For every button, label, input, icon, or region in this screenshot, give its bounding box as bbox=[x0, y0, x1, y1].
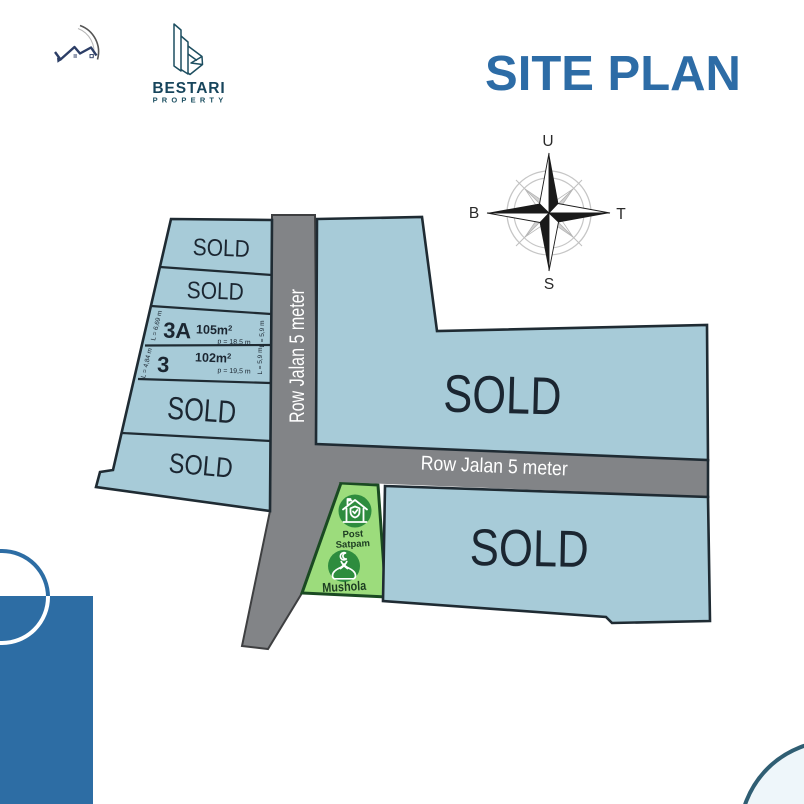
svg-text:L = 5,9 m: L = 5,9 m bbox=[257, 347, 264, 374]
svg-text:p = 19,5 m: p = 19,5 m bbox=[217, 367, 251, 375]
svg-text:3A: 3A bbox=[163, 318, 192, 344]
svg-text:SOLD: SOLD bbox=[192, 234, 250, 263]
svg-text:Mushola: Mushola bbox=[322, 578, 367, 595]
svg-text:BESTARI: BESTARI bbox=[152, 80, 225, 97]
svg-text:SOLD: SOLD bbox=[469, 519, 589, 579]
svg-text:PROPERTY: PROPERTY bbox=[153, 96, 228, 105]
svg-text:SOLD: SOLD bbox=[186, 277, 244, 306]
svg-text:p = 18,5 m: p = 18,5 m bbox=[217, 338, 251, 346]
svg-text:102m2: 102m2 bbox=[195, 350, 232, 365]
svg-text:SOLD: SOLD bbox=[166, 390, 237, 431]
svg-text:105m2: 105m2 bbox=[196, 322, 233, 337]
svg-text:Row Jalan 5 meter: Row Jalan 5 meter bbox=[286, 289, 309, 423]
svg-text:U: U bbox=[542, 133, 553, 150]
svg-text:SOLD: SOLD bbox=[168, 447, 234, 483]
svg-text:SOLD: SOLD bbox=[443, 364, 563, 426]
svg-text:3: 3 bbox=[157, 352, 170, 377]
svg-text:L = 5,9 m: L = 5,9 m bbox=[259, 320, 266, 347]
svg-text:B: B bbox=[469, 205, 479, 222]
svg-text:SITE PLAN: SITE PLAN bbox=[485, 47, 741, 101]
svg-text:T: T bbox=[616, 206, 626, 223]
svg-text:Satpam: Satpam bbox=[335, 538, 370, 551]
svg-text:S: S bbox=[544, 276, 554, 293]
